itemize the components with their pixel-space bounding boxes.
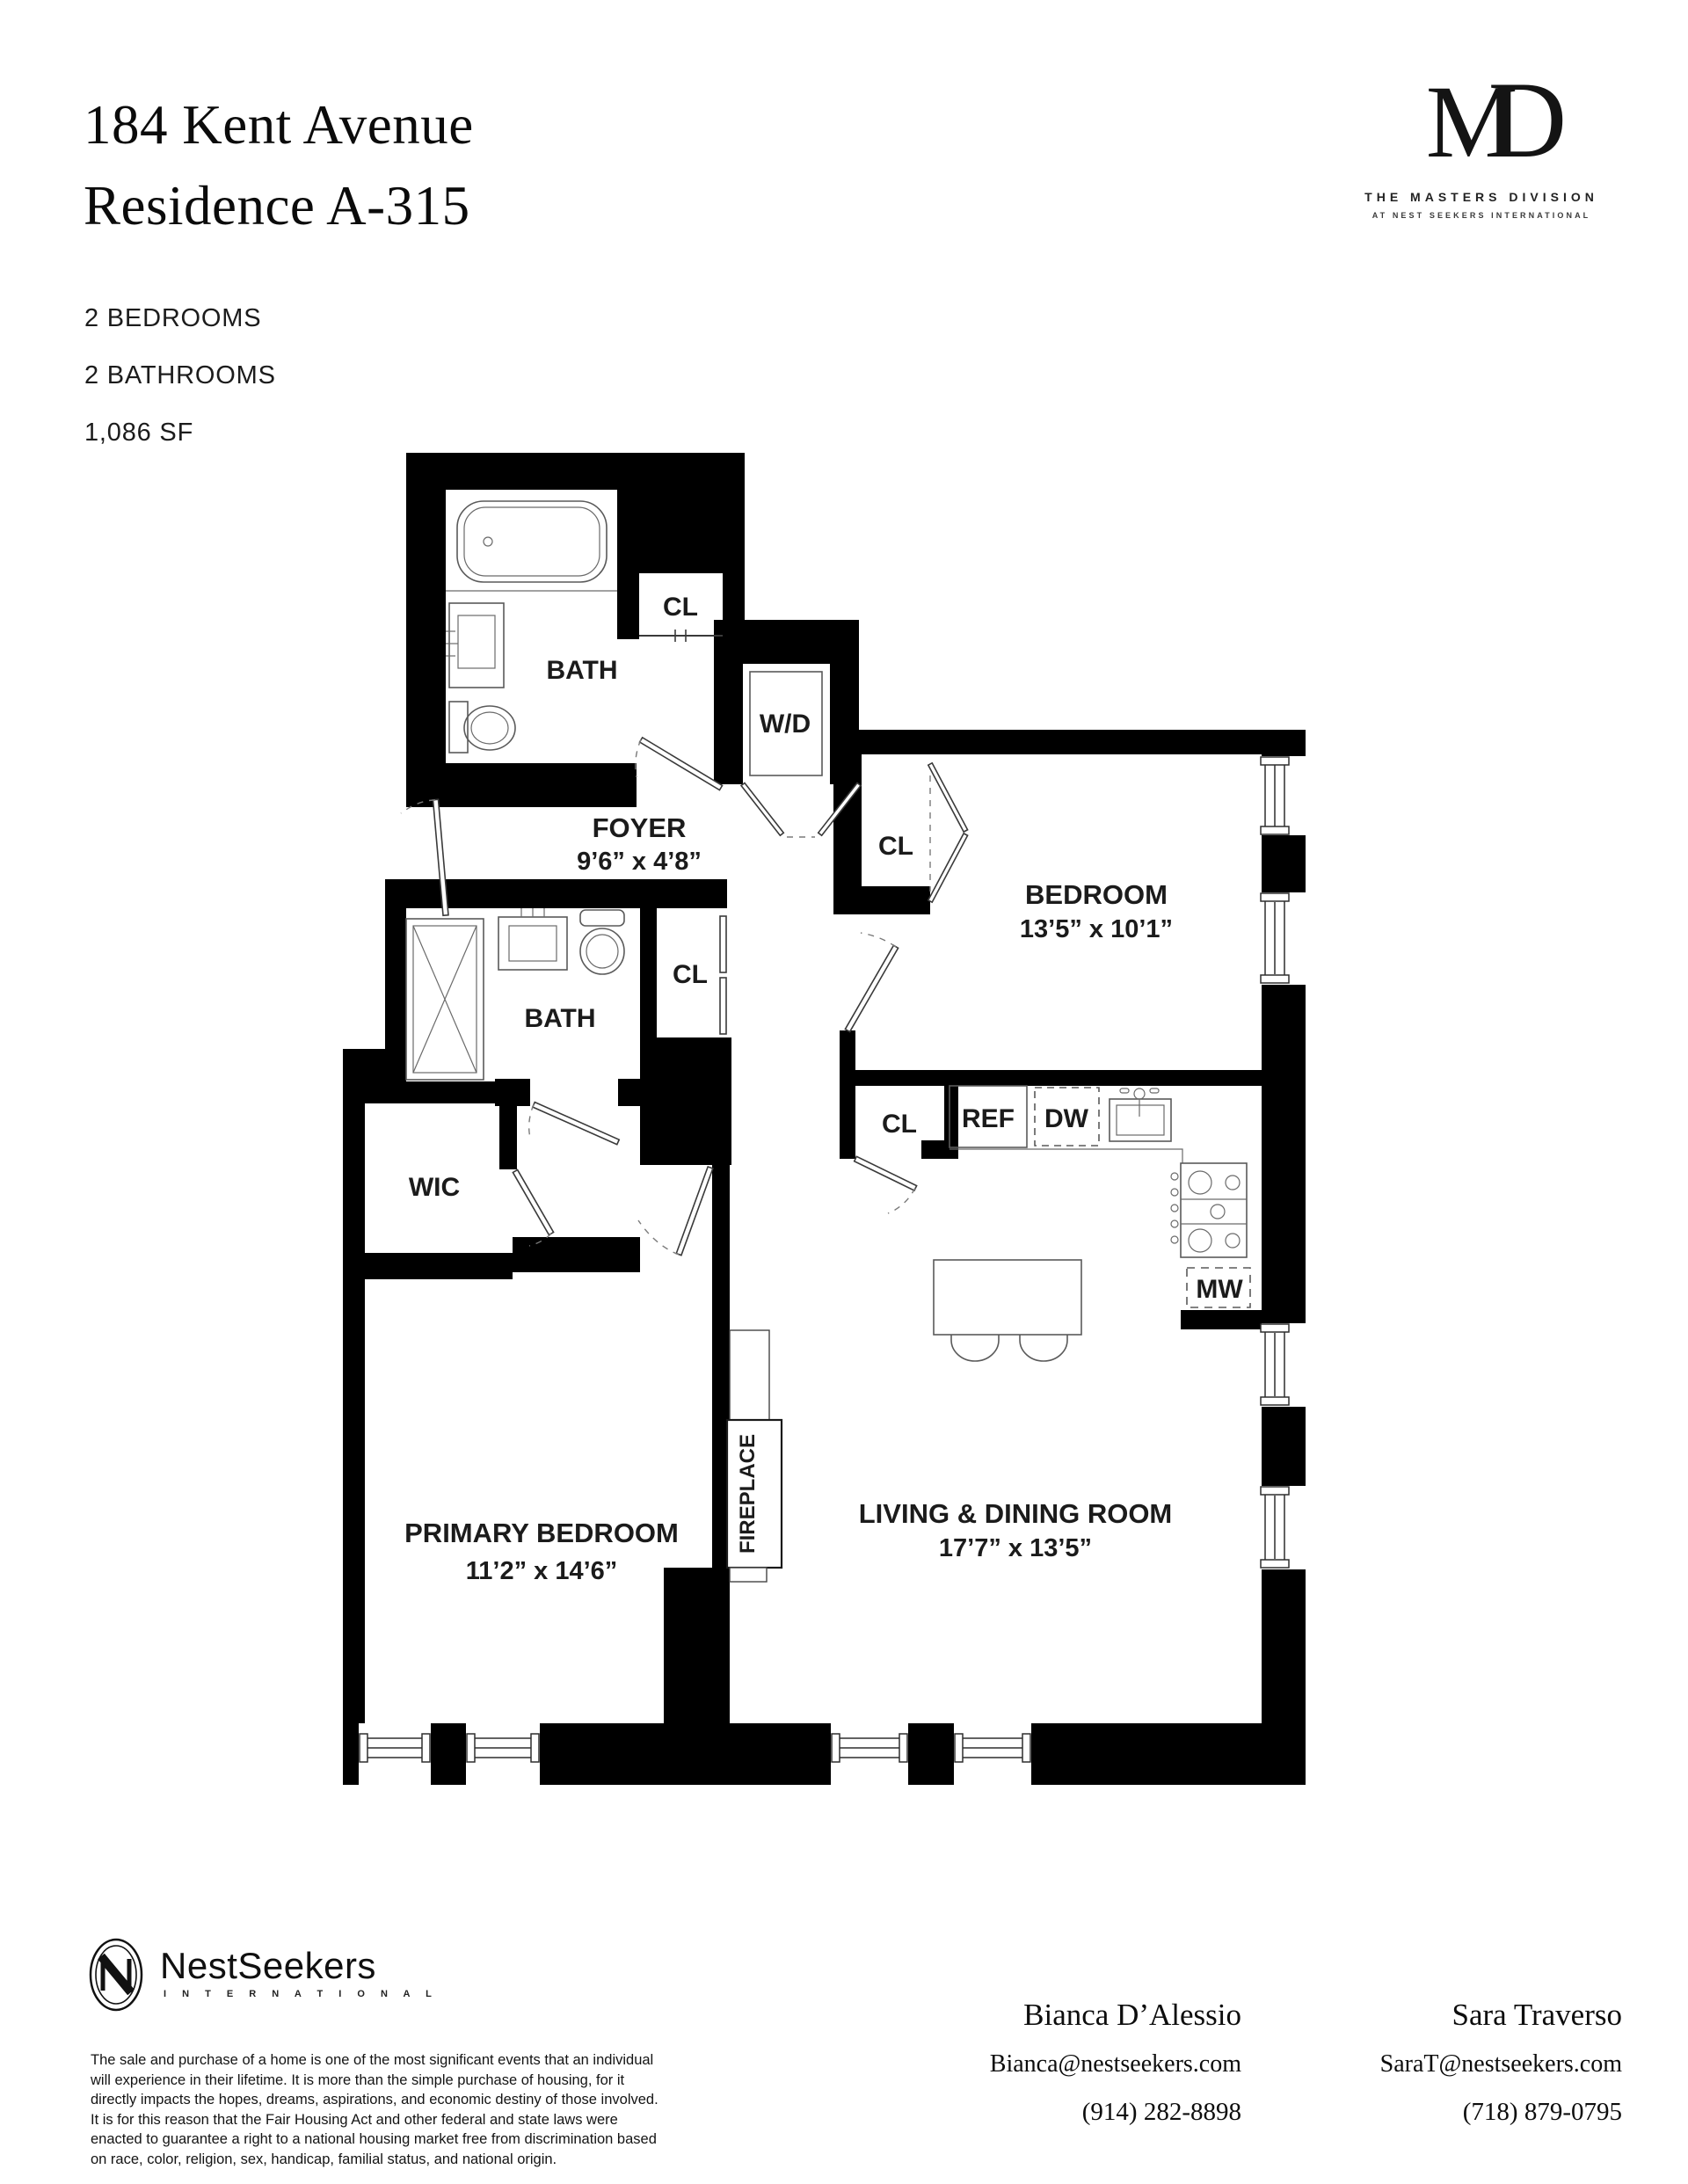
spec-bedrooms: 2 BEDROOMS: [84, 290, 276, 347]
brand-line1: THE MASTERS DIVISION: [1336, 190, 1626, 204]
stool-icon: [1020, 1335, 1067, 1361]
window-icon: [1261, 1487, 1289, 1568]
bath-door-icon: [636, 738, 723, 790]
nestseekers-international: I N T E R N A T I O N A L: [164, 1989, 438, 1999]
bedroom-dims: 13’5” x 10’1”: [1020, 915, 1173, 943]
foyer-dims: 9’6” x 4’8”: [577, 848, 702, 876]
stool-icon: [951, 1335, 999, 1361]
foyer-label: FOYER: [593, 812, 687, 843]
fair-housing-disclaimer: The sale and purchase of a home is one o…: [91, 2050, 664, 2169]
sink-icon: [446, 603, 504, 688]
mw-label: MW: [1196, 1275, 1243, 1304]
cl-kitchen-label: CL: [882, 1110, 917, 1139]
floorplan-sheet: 184 Kent Avenue Residence A-315 2 BEDROO…: [0, 0, 1688, 2184]
bathtub-icon: [446, 501, 617, 591]
toilet-icon: [580, 910, 624, 974]
spec-area: 1,086 SF: [84, 404, 276, 462]
window-icon: [1261, 757, 1289, 834]
window-icon: [832, 1734, 907, 1762]
window-icon: [467, 1734, 539, 1762]
md-monogram-icon: MD: [1336, 69, 1626, 174]
contact-email: SaraT@nestseekers.com: [1380, 2050, 1622, 2078]
cl-top-label: CL: [663, 593, 698, 622]
ref-label: REF: [962, 1104, 1015, 1133]
closet-door-icon: [928, 763, 968, 902]
contact-phone: (718) 879-0795: [1380, 2098, 1622, 2127]
living-dims: 17’7” x 13’5”: [939, 1534, 1092, 1562]
bath2-label: BATH: [524, 1004, 595, 1033]
nestseekers-wordmark: NestSeekers: [160, 1945, 376, 1987]
unit-specs: 2 BEDROOMS 2 BATHROOMS 1,086 SF: [84, 290, 276, 462]
masters-division-logo: MD THE MASTERS DIVISION AT NEST SEEKERS …: [1336, 69, 1626, 220]
closet-door-icon: [720, 916, 726, 1034]
closet-door-icon: [639, 630, 723, 642]
bath1-label: BATH: [546, 656, 617, 685]
window-icon: [360, 1734, 430, 1762]
nestseekers-logo-icon: [88, 1934, 146, 2015]
living-label: LIVING & DINING ROOM: [859, 1498, 1173, 1529]
toilet-icon: [449, 702, 515, 753]
sink-icon: [498, 908, 567, 970]
contact-name: Sara Traverso: [1380, 1998, 1622, 2033]
brand-line2: AT NEST SEEKERS INTERNATIONAL: [1336, 211, 1626, 220]
primary-door-icon: [638, 1167, 713, 1256]
shower-icon: [406, 919, 484, 1080]
primary-label: PRIMARY BEDROOM: [404, 1518, 679, 1548]
contact-name: Bianca D’Alessio: [990, 1998, 1241, 2033]
bedroom-door-icon: [845, 933, 898, 1032]
closet-door-icon: [855, 1156, 917, 1213]
title-line2: Residence A-315: [84, 165, 474, 246]
contact-phone: (914) 282-8898: [990, 2098, 1241, 2127]
wic-door-icon: [513, 1170, 553, 1247]
primary-dims: 11’2” x 14’6”: [466, 1557, 618, 1585]
contact-email: Bianca@nestseekers.com: [990, 2050, 1241, 2078]
dw-label: DW: [1044, 1104, 1089, 1133]
page-title: 184 Kent Avenue Residence A-315: [84, 84, 474, 246]
window-icon: [1261, 893, 1289, 983]
title-line1: 184 Kent Avenue: [84, 84, 474, 165]
fireplace-label: FIREPLACE: [736, 1434, 760, 1554]
contact-sara: Sara Traverso SaraT@nestseekers.com (718…: [1380, 1998, 1622, 2127]
floor-plan: BATH CL W/D FOYER 9’6” x 4’8” CL BEDROOM…: [343, 440, 1415, 1785]
wd-label: W/D: [760, 710, 811, 739]
contact-bianca: Bianca D’Alessio Bianca@nestseekers.com …: [990, 1998, 1241, 2127]
spec-bathrooms: 2 BATHROOMS: [84, 347, 276, 404]
stove-icon: [1171, 1163, 1247, 1257]
wic-label: WIC: [409, 1173, 460, 1202]
bath-door-icon: [529, 1103, 620, 1145]
window-icon: [955, 1734, 1030, 1762]
cl-bedroom-label: CL: [878, 832, 913, 861]
cl-bath-label: CL: [673, 960, 708, 989]
island: [934, 1260, 1081, 1361]
window-icon: [1261, 1324, 1289, 1405]
bedroom-label: BEDROOM: [1025, 879, 1168, 910]
